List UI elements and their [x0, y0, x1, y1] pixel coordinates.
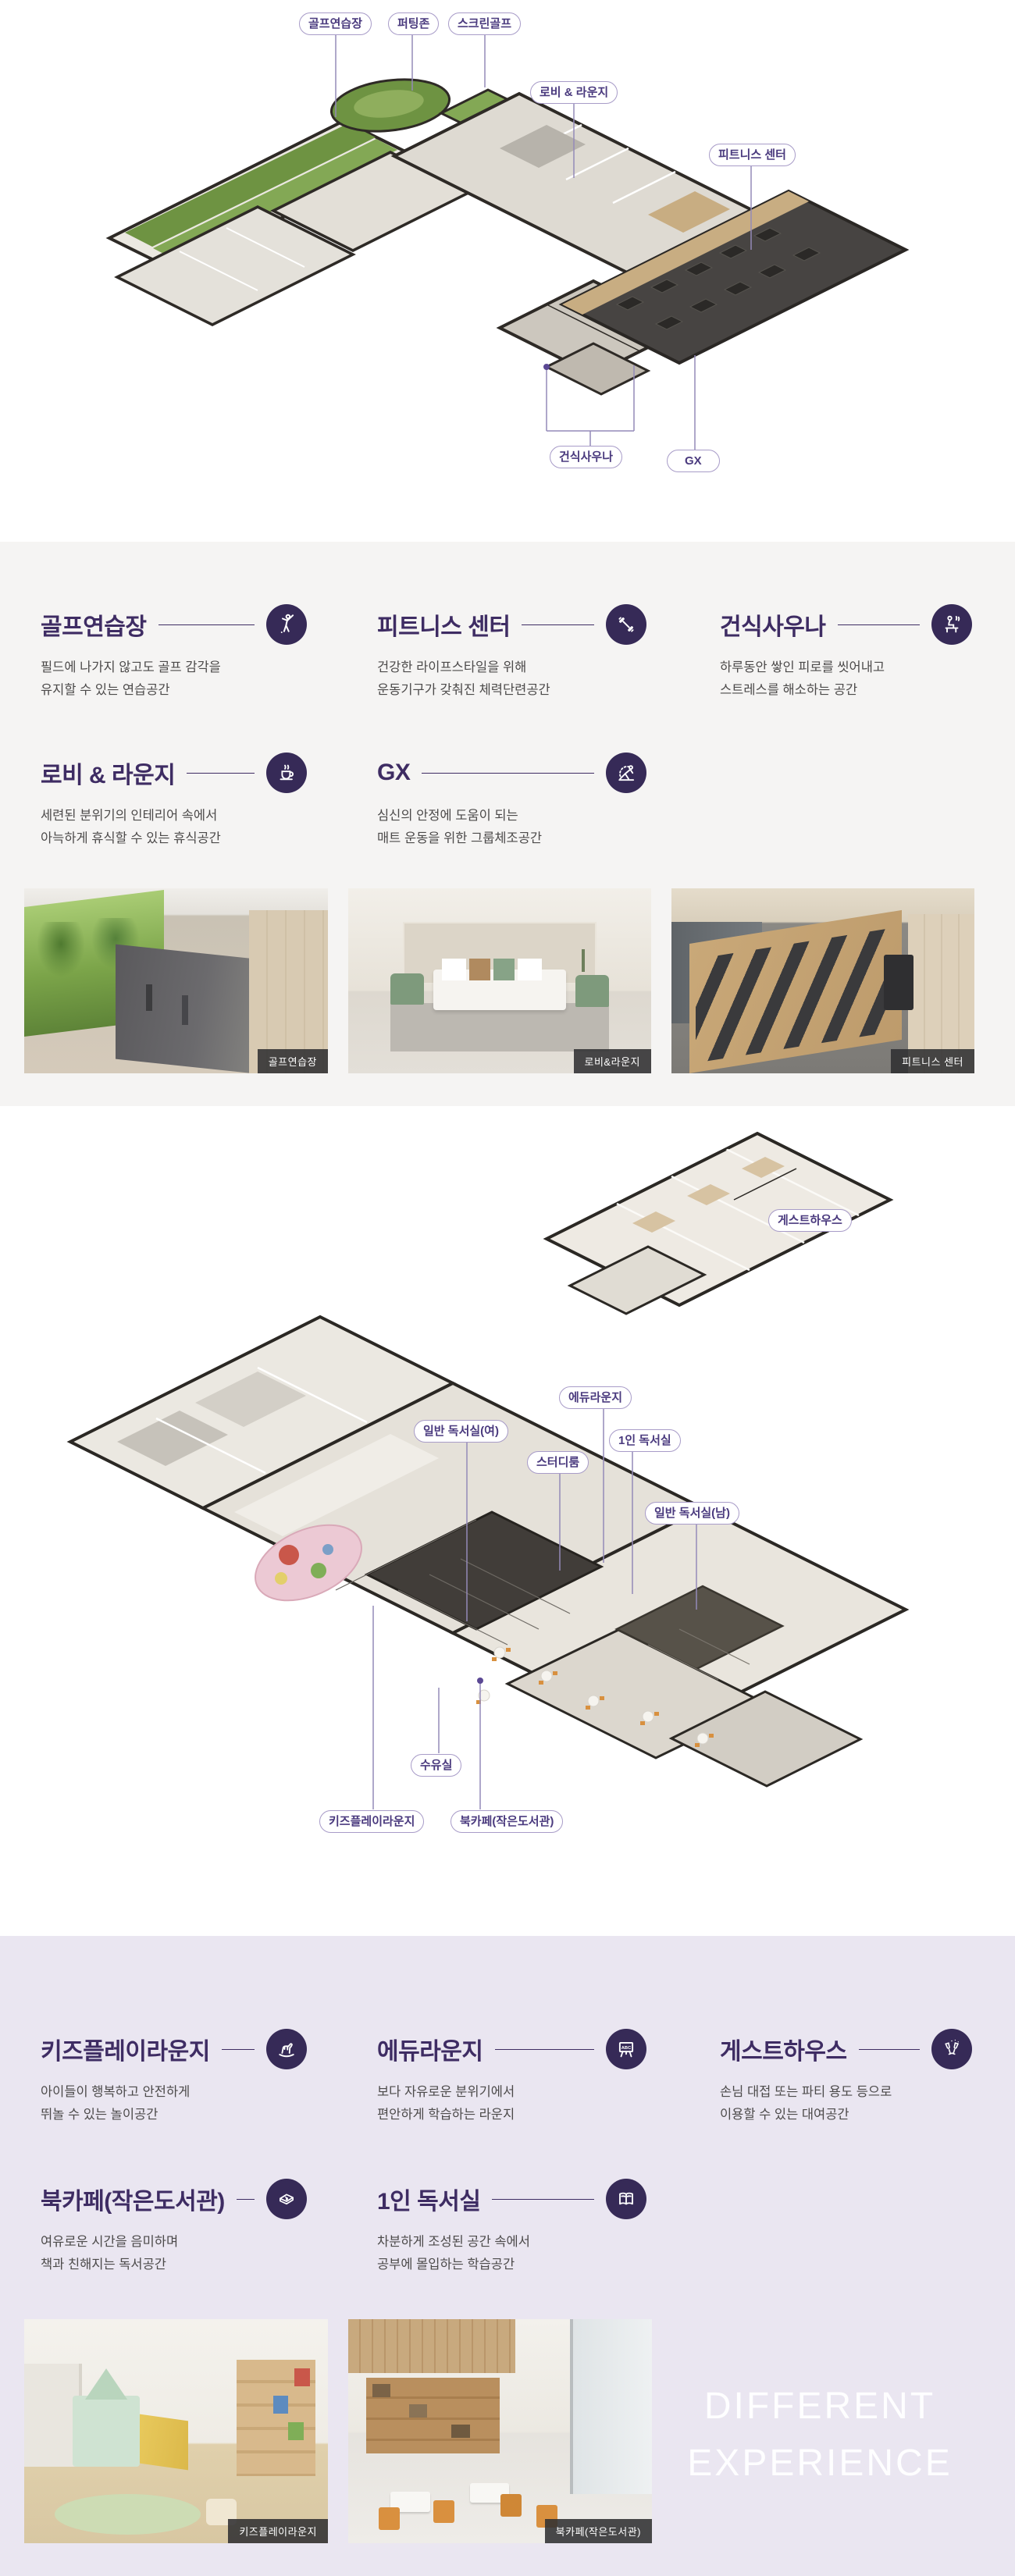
feature-title: 게스트하우스 — [720, 2032, 847, 2066]
plan2-label-single-reading-room: 1인 독서실 — [609, 1429, 681, 1452]
feature-title: 건식사우나 — [720, 607, 826, 642]
feature-single-reading-room: 1인 독서실 차분하게 조성된 공간 속에서 공부에 몰입하는 학습공간 — [377, 2179, 646, 2276]
feature-description: 필드에 나가지 않고도 골프 감각을 유지할 수 있는 연습공간 — [41, 656, 307, 702]
community-facilities-page: 골프연습장 퍼팅존 스크린골프 로비 & 라운지 피트니스 센터 건식사우나 G… — [0, 0, 1015, 2576]
feature-description: 건강한 라이프스타일을 위해 운동기구가 갖춰진 체력단련공간 — [377, 656, 646, 702]
plan2-label-reading-room-women: 일반 독서실(여) — [414, 1420, 508, 1443]
plan2-label-nursing-room: 수유실 — [411, 1754, 461, 1777]
yoga-icon — [606, 753, 646, 793]
rocking-horse-icon — [266, 2029, 307, 2069]
feature-dry-sauna: 건식사우나 하루동안 쌓인 피로를 씻어내고 스트레스를 해소하는 공간 — [720, 604, 972, 702]
plan1-label-fitness-center: 피트니스 센터 — [709, 144, 796, 166]
lobby-photo-art — [348, 888, 651, 1073]
feature-lobby-lounge: 로비 & 라운지 세련된 분위기의 인테리어 속에서 아늑하게 휴식할 수 있는… — [41, 753, 307, 850]
golfer-icon — [266, 604, 307, 645]
feature-title: 에듀라운지 — [377, 2032, 483, 2066]
divider-line — [187, 773, 255, 774]
book-cafe-photo-art — [348, 2319, 652, 2543]
plan2-label-edu-lounge: 에듀라운지 — [559, 1386, 632, 1409]
open-book-icon — [606, 2179, 646, 2219]
feature-description: 여유로운 시간을 음미하며 책과 친해지는 독서공간 — [41, 2231, 307, 2276]
floorplan-2-section: 게스트하우스 에듀라운지 일반 독서실(여) 1인 독서실 스터디룸 일반 독서… — [0, 1106, 1015, 1936]
plan1-label-gx: GX — [667, 450, 720, 472]
plan1-label-dry-sauna: 건식사우나 — [550, 446, 622, 468]
feature-title: 북카페(작은도서관) — [41, 2182, 225, 2216]
kids-lounge-photo-art — [24, 2319, 328, 2543]
feature-gx: GX 심신의 안정에 도움이 되는 매트 운동을 위한 그룹체조공간 — [377, 753, 646, 850]
divider-line — [495, 2049, 595, 2050]
golf-range-photo-art — [24, 888, 328, 1073]
sauna-icon — [931, 604, 972, 645]
photo-caption: 로비&라운지 — [574, 1049, 651, 1073]
tagline-line-2: EXPERIENCE — [664, 2435, 976, 2492]
feature-title: 골프연습장 — [41, 607, 147, 642]
plan2-label-kids-play-lounge: 키즈플레이라운지 — [319, 1810, 424, 1833]
feature-kids-play-lounge: 키즈플레이라운지 아이들이 행복하고 안전하게 뛰놀 수 있는 놀이공간 — [41, 2029, 307, 2126]
photo-caption: 골프연습장 — [258, 1049, 328, 1073]
feature-description: 손님 대접 또는 파티 용도 등으로 이용할 수 있는 대여공간 — [720, 2081, 972, 2126]
feature-description: 하루동안 쌓인 피로를 씻어내고 스트레스를 해소하는 공간 — [720, 656, 972, 702]
coffee-icon — [266, 753, 307, 793]
plan1-label-lobby-lounge: 로비 & 라운지 — [530, 81, 618, 104]
divider-line — [222, 2049, 255, 2050]
divider-line — [492, 2199, 594, 2200]
feature-title: 로비 & 라운지 — [41, 756, 175, 790]
divider-line — [158, 624, 255, 625]
plan1-label-screen-golf: 스크린골프 — [448, 12, 521, 35]
facilities-1-section: 골프연습장 필드에 나가지 않고도 골프 감각을 유지할 수 있는 연습공간 피… — [0, 542, 1015, 1106]
plan1-label-putting-zone: 퍼팅존 — [388, 12, 439, 35]
divider-line — [237, 2199, 255, 2200]
photo-lobby-lounge: 로비&라운지 — [348, 888, 651, 1073]
floorplan-1-graphic — [0, 0, 1015, 542]
feature-book-cafe: 북카페(작은도서관) 여유로운 시간을 음미하며 책과 친해지는 독서공간 — [41, 2179, 307, 2276]
photo-book-cafe: 북카페(작은도서관) — [348, 2319, 652, 2543]
facilities-2-section: 키즈플레이라운지 아이들이 행복하고 안전하게 뛰놀 수 있는 놀이공간 에듀라… — [0, 1936, 1015, 2576]
plan2-label-book-cafe: 북카페(작은도서관) — [451, 1810, 563, 1833]
svg-text:ABC: ABC — [621, 2046, 631, 2051]
feature-guest-house: 게스트하우스 — [720, 2029, 972, 2126]
photo-kids-play-lounge: 키즈플레이라운지 — [24, 2319, 328, 2543]
feature-title: 1인 독서실 — [377, 2182, 480, 2216]
photo-caption: 피트니스 센터 — [891, 1049, 974, 1073]
floorplan-1-section: 골프연습장 퍼팅존 스크린골프 로비 & 라운지 피트니스 센터 건식사우나 G… — [0, 0, 1015, 542]
divider-line — [838, 624, 921, 625]
divider-line — [422, 773, 594, 774]
divider-line — [859, 2049, 920, 2050]
dumbbell-icon — [606, 604, 646, 645]
photo-golf-range: 골프연습장 — [24, 888, 328, 1073]
photo-caption: 키즈플레이라운지 — [228, 2519, 328, 2543]
plan2-label-guest-house: 게스트하우스 — [768, 1209, 852, 1232]
photo-caption: 북카페(작은도서관) — [545, 2519, 652, 2543]
feature-edu-lounge: 에듀라운지 ABC 보다 자유로운 분위기에서 편안하게 학습하는 라운지 — [377, 2029, 646, 2126]
plan1-label-golf-range: 골프연습장 — [299, 12, 372, 35]
feature-title: GX — [377, 760, 410, 786]
tagline-different-experience: DIFFERENT EXPERIENCE — [664, 2378, 976, 2492]
feature-title: 피트니스 센터 — [377, 607, 510, 642]
book-icon — [266, 2179, 307, 2219]
tagline-line-1: DIFFERENT — [664, 2378, 976, 2435]
photo-fitness-center: 피트니스 센터 — [671, 888, 974, 1073]
feature-description: 보다 자유로운 분위기에서 편안하게 학습하는 라운지 — [377, 2081, 646, 2126]
feature-description: 차분하게 조성된 공간 속에서 공부에 몰입하는 학습공간 — [377, 2231, 646, 2276]
plan2-label-reading-room-men: 일반 독서실(남) — [645, 1502, 739, 1525]
divider-line — [522, 624, 594, 625]
feature-description: 아이들이 행복하고 안전하게 뛰놀 수 있는 놀이공간 — [41, 2081, 307, 2126]
chalkboard-icon: ABC — [606, 2029, 646, 2069]
feature-fitness-center: 피트니스 센터 건강한 라이프스타일을 위해 운동기구가 갖춰진 체력단련 — [377, 604, 646, 702]
feature-description: 세련된 분위기의 인테리어 속에서 아늑하게 휴식할 수 있는 휴식공간 — [41, 805, 307, 850]
fitness-photo-art — [671, 888, 974, 1073]
feature-golf-range: 골프연습장 필드에 나가지 않고도 골프 감각을 유지할 수 있는 연습공간 — [41, 604, 307, 702]
party-glasses-icon — [931, 2029, 972, 2069]
feature-description: 심신의 안정에 도움이 되는 매트 운동을 위한 그룹체조공간 — [377, 805, 646, 850]
feature-title: 키즈플레이라운지 — [41, 2032, 210, 2066]
plan2-label-study-room: 스터디룸 — [527, 1451, 589, 1474]
